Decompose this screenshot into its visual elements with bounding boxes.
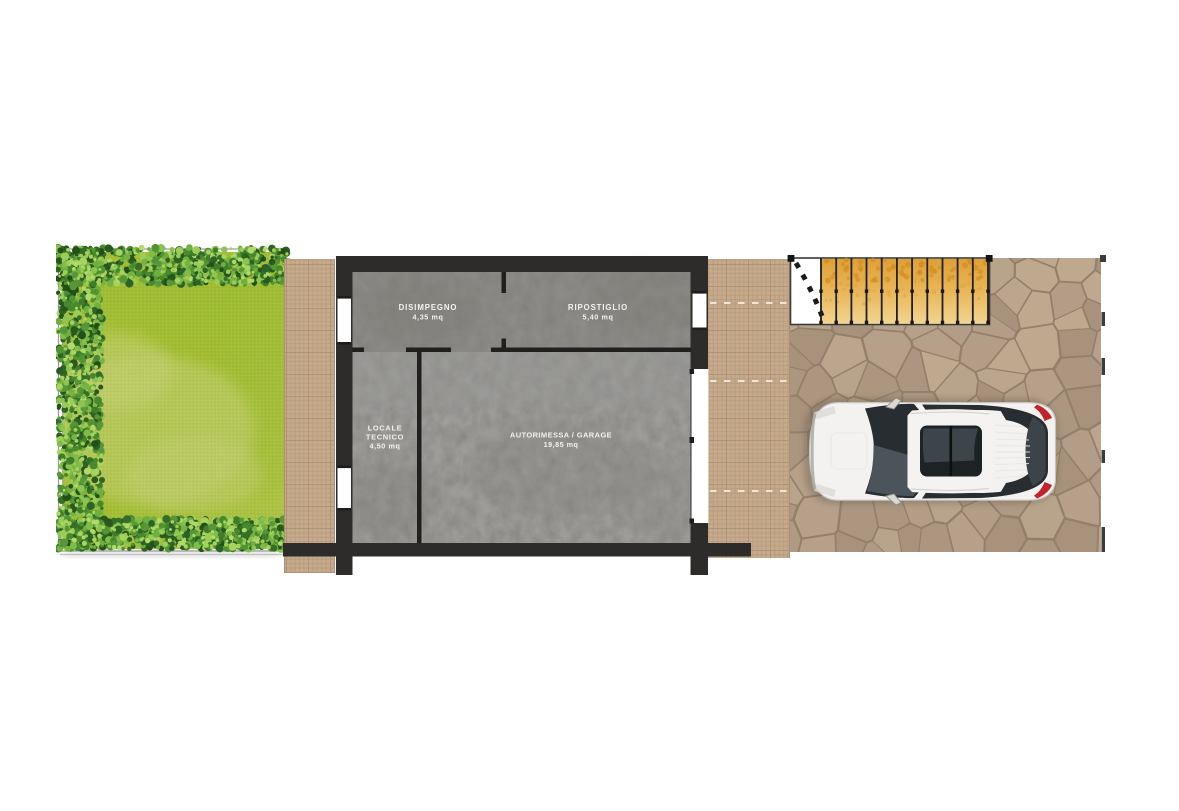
svg-text:4,35 mq: 4,35 mq xyxy=(413,313,444,322)
svg-text:4,50 mq: 4,50 mq xyxy=(370,442,401,451)
svg-text:RIPOSTIGLIO: RIPOSTIGLIO xyxy=(568,303,628,312)
svg-text:TECNICO: TECNICO xyxy=(366,433,404,442)
svg-text:5,40 mq: 5,40 mq xyxy=(583,313,614,322)
svg-text:AUTORIMESSA / GARAGE: AUTORIMESSA / GARAGE xyxy=(510,431,612,440)
svg-text:LOCALE: LOCALE xyxy=(368,424,403,433)
svg-text:19,85 mq: 19,85 mq xyxy=(544,440,579,449)
svg-text:DISIMPEGNO: DISIMPEGNO xyxy=(399,303,458,312)
